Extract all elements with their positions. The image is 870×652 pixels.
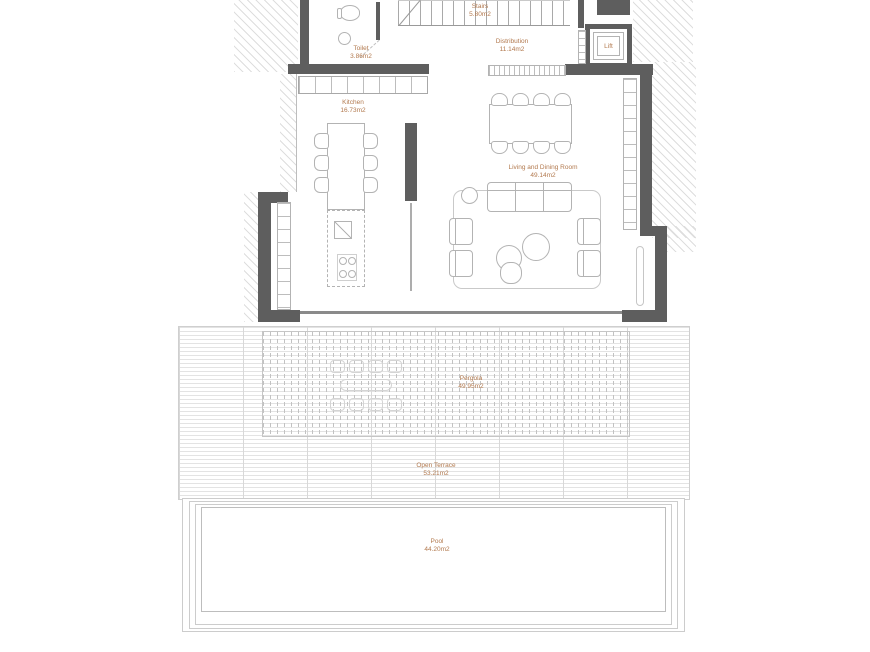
kitchen-island-table <box>327 123 365 210</box>
outdoor-seat <box>330 360 345 373</box>
kitchen-chair <box>363 133 378 149</box>
room-label-toilet: Toilet 3.86m2 <box>350 45 372 61</box>
outdoor-table <box>340 379 392 391</box>
pergola-furniture <box>330 360 402 411</box>
hatch-left-lower <box>244 192 258 322</box>
room-label-distribution: Distribution 11.14m2 <box>496 38 529 54</box>
toilet-sink <box>338 32 351 45</box>
outdoor-seat <box>387 398 402 411</box>
room-label-lift: Lift <box>604 43 613 51</box>
room-label-open-terrace: Open Terrace 53.21m2 <box>416 462 455 478</box>
railing-distribution <box>488 65 566 76</box>
dining-table <box>489 104 572 144</box>
outdoor-seat <box>330 398 345 411</box>
dining-chair <box>512 93 529 106</box>
toilet-area: 3.86m2 <box>350 53 372 61</box>
floor-plan: Lift <box>0 0 870 652</box>
kitchen-chair <box>363 155 378 171</box>
living-side-table <box>500 262 522 284</box>
kitchen-area: 16.73m2 <box>340 107 365 115</box>
wall-toilet-left <box>300 0 309 66</box>
room-label-kitchen: Kitchen 16.73m2 <box>340 99 365 115</box>
stairs-area: 5.80m2 <box>469 11 491 19</box>
kitchen-chair <box>363 177 378 193</box>
dining-chair <box>512 141 529 154</box>
pool-name: Pool <box>424 538 449 546</box>
stove-burner <box>339 270 347 278</box>
living-floor-lamp <box>461 187 478 204</box>
wall-left-of-lift <box>578 0 584 28</box>
toilet-cistern <box>337 8 342 19</box>
living-sofa <box>487 182 572 212</box>
lift-shaft: Lift <box>585 24 632 68</box>
boundary-line-left <box>296 74 297 192</box>
living-dining-name: Living and Dining Room <box>508 164 577 172</box>
hatch-right-lower <box>667 226 696 252</box>
toilet-wc <box>340 5 360 21</box>
distribution-name: Distribution <box>496 38 529 46</box>
toilet-name: Toilet <box>350 45 372 53</box>
window-left <box>277 202 291 310</box>
wall-top-right-block <box>597 0 630 15</box>
outdoor-seat <box>349 398 364 411</box>
wall-kitchen-top <box>288 64 429 74</box>
living-armchair <box>449 250 473 277</box>
pergola-area <box>262 331 630 437</box>
stairs-name: Stairs <box>469 3 491 11</box>
pergola-name: Pergola <box>458 375 483 383</box>
wall-left-bottom-cap <box>258 310 300 322</box>
living-armchair <box>577 218 601 245</box>
pergola-slats <box>263 332 629 436</box>
dining-chair <box>554 141 571 154</box>
pergola-area-value: 49.95m2 <box>458 383 483 391</box>
hatch-top-right <box>633 0 693 62</box>
dining-chair <box>554 93 571 106</box>
kitchen-sink <box>334 221 352 239</box>
dining-chair <box>533 141 550 154</box>
pool-area: 44.20m2 <box>424 546 449 554</box>
wall-left <box>258 192 271 322</box>
room-label-living-dining: Living and Dining Room 49.14m2 <box>508 164 577 180</box>
kitchen-chair <box>314 177 329 193</box>
living-armchair <box>577 250 601 277</box>
outdoor-seat <box>368 398 383 411</box>
living-coffee-table <box>522 233 550 261</box>
kitchen-name: Kitchen <box>340 99 365 107</box>
wall-toilet-right-fin <box>376 2 380 40</box>
open-terrace-area: 53.21m2 <box>416 470 455 478</box>
stove-burner <box>348 270 356 278</box>
wall-right-upper <box>640 64 652 236</box>
hatch-top-left <box>234 0 298 72</box>
stove-burner <box>348 257 356 265</box>
window-right <box>623 78 637 230</box>
wall-right-lower <box>655 226 667 322</box>
kitchen-stove <box>337 254 357 281</box>
outdoor-seat <box>349 360 364 373</box>
kitchen-counter <box>298 76 428 94</box>
room-label-pool: Pool 44.20m2 <box>424 538 449 554</box>
room-label-stairs: Stairs 5.80m2 <box>469 3 491 19</box>
glass-wall-bottom <box>300 311 622 314</box>
window-stair-landing <box>578 30 586 64</box>
wall-kitchen-partition <box>405 123 417 201</box>
hatch-left-upper <box>280 74 296 192</box>
living-dining-area: 49.14m2 <box>508 172 577 180</box>
dining-chair <box>533 93 550 106</box>
kitchen-chair <box>314 155 329 171</box>
outdoor-seat <box>387 360 402 373</box>
open-terrace-name: Open Terrace <box>416 462 455 470</box>
stove-burner <box>339 257 347 265</box>
outdoor-seat <box>368 360 383 373</box>
hatch-right <box>652 62 696 238</box>
pool-basin <box>201 507 666 612</box>
dining-chair <box>491 93 508 106</box>
living-armchair <box>449 218 473 245</box>
dining-chair <box>491 141 508 154</box>
chimney-element <box>636 246 644 306</box>
glass-partition-line <box>410 203 412 291</box>
lift-name: Lift <box>604 43 613 51</box>
room-label-pergola: Pergola 49.95m2 <box>458 375 483 391</box>
distribution-area: 11.14m2 <box>496 46 529 54</box>
kitchen-chair <box>314 133 329 149</box>
